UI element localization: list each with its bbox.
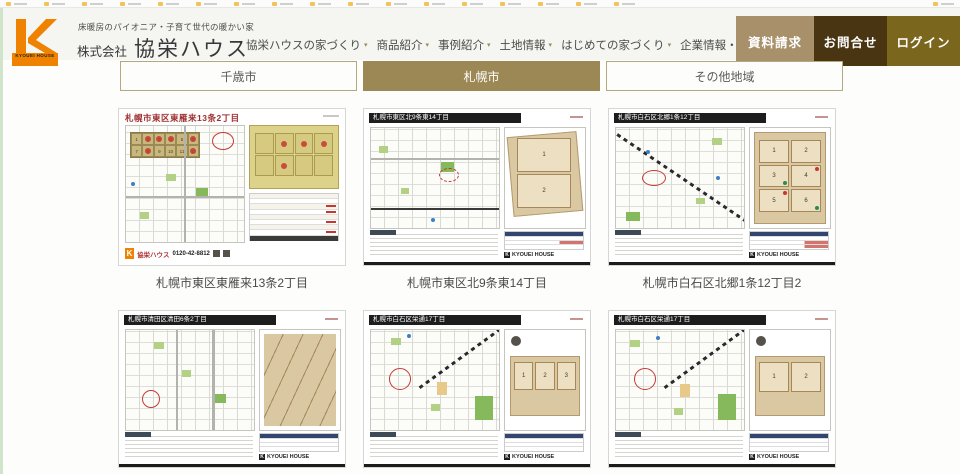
folder-icon (82, 2, 87, 6)
property-card[interactable]: 札幌市清田区清田6条2丁目 K KYOUEI HOUSE (118, 310, 346, 468)
lot-cell: 6 (188, 133, 199, 145)
main-nav: 協栄ハウスの家づくり▾ 商品紹介▾ 事例紹介▾ 土地情報▾ はじめての家づくり▾… (246, 37, 756, 53)
nav-item-shohin[interactable]: 商品紹介▾ (377, 37, 430, 53)
bookmark-item[interactable] (538, 2, 559, 6)
folder-icon (933, 2, 938, 6)
k-mark-icon: K (504, 252, 510, 258)
folder-icon (6, 2, 11, 6)
map-highlight-circle (142, 390, 160, 408)
compass-icon (756, 336, 766, 346)
bookmark-item[interactable] (348, 2, 369, 6)
railway-line (664, 329, 745, 389)
flyer-lot-plan: 123456 (749, 127, 831, 229)
folder-icon (44, 2, 49, 6)
folder-icon (158, 2, 163, 6)
nav-item-iezukuri[interactable]: 協栄ハウスの家づくり▾ (246, 37, 368, 53)
railway-line (371, 208, 499, 210)
property-flyer: 札幌市東区北9条東14丁目 12 K KYOUEI HOUSE (363, 108, 591, 266)
lot-cell: 2 (791, 362, 821, 392)
lot-cell: 8 (142, 145, 153, 157)
flyer-title: 札幌市東区東雁来13条2丁目 (125, 112, 240, 124)
nav-item-jirei[interactable]: 事例紹介▾ (438, 37, 491, 53)
lot-cell: 2 (142, 133, 153, 145)
folder-icon (500, 2, 505, 6)
flyer-lot-plan: 12 (749, 329, 831, 431)
bookmark-item[interactable] (386, 2, 407, 6)
flyer-bottom-bar (119, 464, 345, 467)
footer-icon (213, 250, 220, 257)
bookmark-item[interactable] (44, 2, 65, 6)
compass-icon (511, 336, 521, 346)
flyer-details (125, 433, 253, 459)
flyer-lot-grid: 123456789101112 (130, 132, 200, 158)
flyer-date (570, 116, 583, 118)
lot-cell: 10 (165, 145, 176, 157)
flyer-brand: K KYOUEI HOUSE (504, 454, 586, 460)
railway-line (419, 329, 500, 389)
flyer-title: 札幌市東区北9条東14丁目 (369, 113, 521, 123)
folder-icon (424, 2, 429, 6)
lot-cell: 2 (517, 174, 571, 208)
flyer-price-table (749, 231, 829, 250)
folder-icon (272, 2, 277, 6)
lot-cell: 4 (791, 165, 821, 188)
bookmark-item[interactable] (500, 2, 521, 6)
lot-cell: 9 (154, 145, 165, 157)
login-button[interactable]: ログイン (887, 16, 960, 66)
bookmarks-bar (0, 0, 960, 8)
nav-item-tochi[interactable]: 土地情報▾ (500, 37, 553, 53)
folder-icon (614, 2, 619, 6)
flyer-details (370, 433, 498, 459)
page-left-accent (0, 8, 3, 474)
lot-cell: 1 (517, 138, 571, 172)
flyer-bottom-bar (364, 262, 590, 265)
property-card[interactable]: 札幌市白石区栄通17丁目 123 K KYOU (363, 310, 591, 468)
lot-cell: 1 (131, 133, 142, 145)
flyer-price-table (259, 433, 339, 452)
tagline: 床暖房のパイオニア・子育て世代の暖かい家 (78, 21, 254, 33)
chevron-down-icon: ▾ (364, 41, 368, 49)
flyer-map: 123456789101112 (125, 125, 245, 243)
map-highlight-circle (212, 132, 234, 150)
folder-icon (234, 2, 239, 6)
bookmark-item[interactable] (6, 2, 27, 6)
flyer-date (325, 318, 338, 320)
bookmark-item[interactable] (158, 2, 179, 6)
kyoei-house-logo[interactable]: KYOUEI HOUSE (12, 19, 58, 66)
flyer-lot-plan (259, 329, 341, 431)
map-highlight-circle (642, 170, 666, 186)
chevron-down-icon: ▾ (549, 41, 553, 49)
bookmark-item[interactable] (614, 2, 635, 6)
flyer-bottom-bar (609, 262, 835, 265)
flyer-brand: K KYOUEI HOUSE (749, 454, 831, 460)
flyer-lot-plan (249, 125, 339, 189)
flyer-brand: 協栄ハウス (137, 249, 170, 259)
folder-icon (348, 2, 353, 6)
lot-cell: 6 (791, 189, 821, 212)
property-card[interactable]: 札幌市白石区北郷1条12丁目 123456 K KYOUEI H (608, 108, 836, 266)
flyer-phone: 0120-42-8812 (173, 251, 210, 257)
lot-cell: 1 (759, 140, 789, 163)
lot-cell: 3 (557, 362, 576, 390)
region-tabs: 千歳市 札幌市 その他地域 (120, 61, 843, 91)
flyer-details (615, 231, 743, 257)
flyer-map (370, 127, 500, 229)
flyer-brand: K KYOUEI HOUSE (504, 252, 586, 258)
flyer-bottom-bar (609, 464, 835, 467)
flyer-footer: K 協栄ハウス 0120-42-8812 (125, 246, 243, 261)
property-card[interactable]: 札幌市白石区栄通17丁目 12 K KYOUE (608, 310, 836, 468)
lot-cell: 5 (759, 189, 789, 212)
flyer-price-table (504, 231, 584, 250)
flyer-bottom-bar (364, 464, 590, 467)
bookmark-item[interactable] (462, 2, 483, 6)
bookmark-item[interactable] (310, 2, 331, 6)
bookmark-item[interactable] (120, 2, 141, 6)
k-mark-icon: K (749, 454, 755, 460)
flyer-brand: K KYOUEI HOUSE (259, 454, 341, 460)
folder-icon (120, 2, 125, 6)
flyer-price-table (504, 433, 584, 452)
site-header: KYOUEI HOUSE 床暖房のパイオニア・子育て世代の暖かい家 株式会社 協… (0, 8, 960, 60)
folder-icon (196, 2, 201, 6)
flyer-map (615, 127, 745, 229)
flyer-title: 札幌市清田区清田6条2丁目 (124, 315, 276, 325)
chevron-down-icon: ▾ (426, 41, 430, 49)
flyer-date (815, 116, 828, 118)
flyer-title: 札幌市白石区栄通17丁目 (369, 315, 521, 325)
property-flyer: 札幌市白石区栄通17丁目 123 K KYOU (363, 310, 591, 468)
property-flyer: 札幌市白石区栄通17丁目 12 K KYOUE (608, 310, 836, 468)
k-mark-icon: K (125, 248, 134, 259)
flyer-title: 札幌市白石区北郷1条12丁目 (614, 113, 766, 123)
bookmark-item[interactable] (576, 2, 597, 6)
flyer-price-table (249, 193, 339, 241)
bookmark-item[interactable] (272, 2, 293, 6)
card-caption: 札幌市東区東雁来13条2丁目 (118, 274, 346, 291)
k-mark-icon (12, 19, 58, 53)
folder-icon (386, 2, 391, 6)
map-highlight-circle (389, 368, 411, 390)
lot-cell: 1 (514, 362, 533, 390)
lot-cell: 3 (759, 165, 789, 188)
folder-icon (538, 2, 543, 6)
chevron-down-icon: ▾ (487, 41, 491, 49)
flyer-details (615, 433, 743, 459)
bookmark-item[interactable] (196, 2, 217, 6)
k-mark-icon: K (504, 454, 510, 460)
flyer-brand: K KYOUEI HOUSE (749, 252, 831, 258)
k-mark-icon: K (259, 454, 265, 460)
flyer-title: 札幌市白石区栄通17丁目 (614, 315, 766, 325)
flyer-lot-plan: 123 (504, 329, 586, 431)
chevron-down-icon: ▾ (668, 41, 672, 49)
lot-cell: 12 (188, 145, 199, 157)
flyer-date (815, 318, 828, 320)
property-flyer: 札幌市白石区北郷1条12丁目 123456 K KYOUEI H (608, 108, 836, 266)
lot-cell: 7 (131, 145, 142, 157)
flyer-price-table (749, 433, 829, 452)
contact-button[interactable]: お問合せ (814, 16, 887, 66)
bookmark-item[interactable] (82, 2, 103, 6)
folder-icon (576, 2, 581, 6)
bookmark-item[interactable] (234, 2, 255, 6)
flyer-details (370, 231, 498, 257)
property-flyer: 札幌市東区東雁来13条2丁目 123456789101112 K 協栄ハウス (118, 108, 346, 266)
bookmark-item[interactable] (424, 2, 445, 6)
map-highlight-circle (439, 168, 459, 182)
flyer-map (125, 329, 255, 431)
company-name[interactable]: 株式会社 協栄ハウス (77, 33, 249, 63)
footer-icon (223, 250, 230, 257)
tab-other-areas[interactable]: その他地域 (606, 61, 843, 91)
logo-wordmark: KYOUEI HOUSE (12, 53, 58, 66)
flyer-date (323, 115, 339, 117)
k-mark-icon: K (749, 252, 755, 258)
folder-icon (462, 2, 467, 6)
card-caption: 札幌市東区北9条東14丁目 (363, 274, 591, 291)
lot-cell: 1 (759, 362, 789, 392)
flyer-map (370, 329, 500, 431)
lot-stripes (264, 334, 336, 426)
lot-cell: 3 (154, 133, 165, 145)
card-caption: 札幌市白石区北郷1条12丁目2 (608, 274, 836, 291)
lot-cell: 4 (165, 133, 176, 145)
property-flyer: 札幌市清田区清田6条2丁目 K KYOUEI HOUSE (118, 310, 346, 468)
flyer-lot-plan: 12 (504, 127, 586, 229)
property-card[interactable]: 札幌市東区北9条東14丁目 12 K KYOUEI HOUSE (363, 108, 591, 266)
tab-chitose[interactable]: 千歳市 (120, 61, 357, 91)
tab-sapporo[interactable]: 札幌市 (363, 61, 600, 91)
lot-cell: 2 (791, 140, 821, 163)
nav-item-hajimete[interactable]: はじめての家づくり▾ (561, 37, 671, 53)
flyer-map (615, 329, 745, 431)
lot-cell: 2 (535, 362, 554, 390)
folder-icon (310, 2, 315, 6)
map-highlight-circle (634, 368, 656, 390)
flyer-date (570, 318, 583, 320)
bookmark-item[interactable] (933, 2, 954, 6)
request-materials-button[interactable]: 資料請求 (736, 16, 814, 66)
property-card[interactable]: 札幌市東区東雁来13条2丁目 123456789101112 K 協栄ハウス (118, 108, 346, 266)
